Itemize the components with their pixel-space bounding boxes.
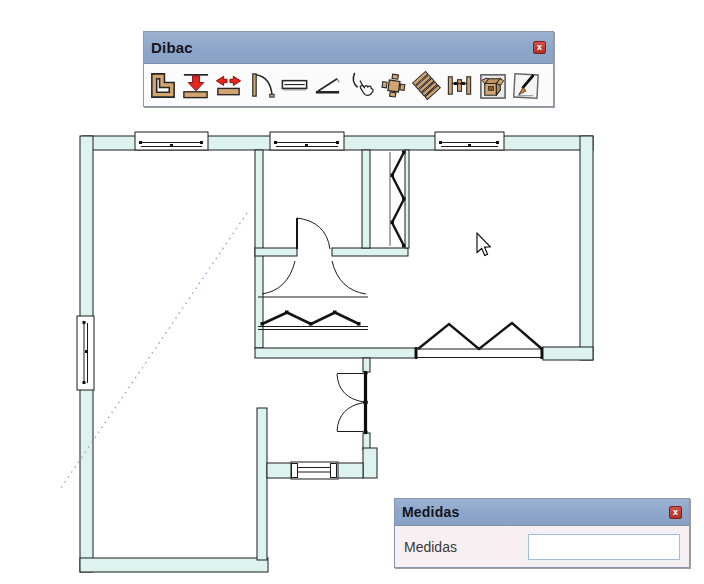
window-top-1 (135, 132, 208, 150)
medidas-body: Medidas (395, 526, 689, 567)
folding-door-right-room (415, 323, 543, 360)
wall-band-middle (255, 348, 415, 358)
medidas-titlebar[interactable]: Medidas x (395, 499, 689, 526)
dibac-title: Dibac (151, 39, 193, 56)
tilt-window-icon[interactable] (311, 67, 344, 105)
dibac-tools-row (144, 64, 553, 106)
medidas-title: Medidas (402, 504, 459, 520)
wall-bottomroom-right-lower (363, 433, 370, 450)
furniture-box-icon[interactable] (476, 67, 509, 105)
furniture-table-icon[interactable] (377, 67, 410, 105)
wall-midroom-bottom-left (255, 248, 297, 256)
wall-bottomroom-right-upper (363, 358, 370, 372)
wall-polygon-icon[interactable] (146, 67, 179, 105)
wall-closet-right (405, 150, 409, 248)
window-icon[interactable] (278, 67, 311, 105)
wall-width-icon[interactable] (212, 67, 245, 105)
pick-curve-icon[interactable] (344, 67, 377, 105)
doors-hallway (262, 261, 366, 294)
dibac-close-button[interactable]: x (533, 41, 546, 54)
window-left (77, 316, 94, 390)
door-icon[interactable] (245, 67, 278, 105)
closet-bifold-doors (258, 297, 368, 330)
wall-right (580, 136, 593, 360)
wall-divider-lower (257, 408, 267, 560)
medidas-input[interactable] (528, 534, 680, 560)
stairs-icon[interactable] (410, 67, 443, 105)
window-top-2 (270, 132, 344, 150)
dibac-titlebar[interactable]: Dibac x (144, 32, 553, 64)
wall-rightroom-bottom-corner (543, 347, 593, 360)
medidas-dialog-window: Medidas x Medidas (394, 498, 690, 568)
window-bottom (291, 462, 338, 479)
wall-midroom-bottom-right (332, 248, 408, 256)
edit-pen-icon[interactable] (509, 67, 542, 105)
wall-bottom (80, 558, 268, 572)
closet-accordion-door (390, 151, 406, 248)
medidas-close-button[interactable]: x (669, 506, 682, 519)
double-swing-door (337, 371, 368, 434)
mouse-cursor-icon (477, 233, 490, 256)
wall-corner-stub (363, 448, 377, 478)
wall-midroom-right (362, 150, 370, 248)
extrude-walls-icon[interactable] (179, 67, 212, 105)
dibac-toolbar-window: Dibac x (143, 31, 554, 107)
carpentry-posts-icon[interactable] (443, 67, 476, 105)
medidas-field-label: Medidas (404, 539, 457, 555)
door-middle-room (297, 218, 330, 249)
window-top-3 (435, 132, 504, 150)
